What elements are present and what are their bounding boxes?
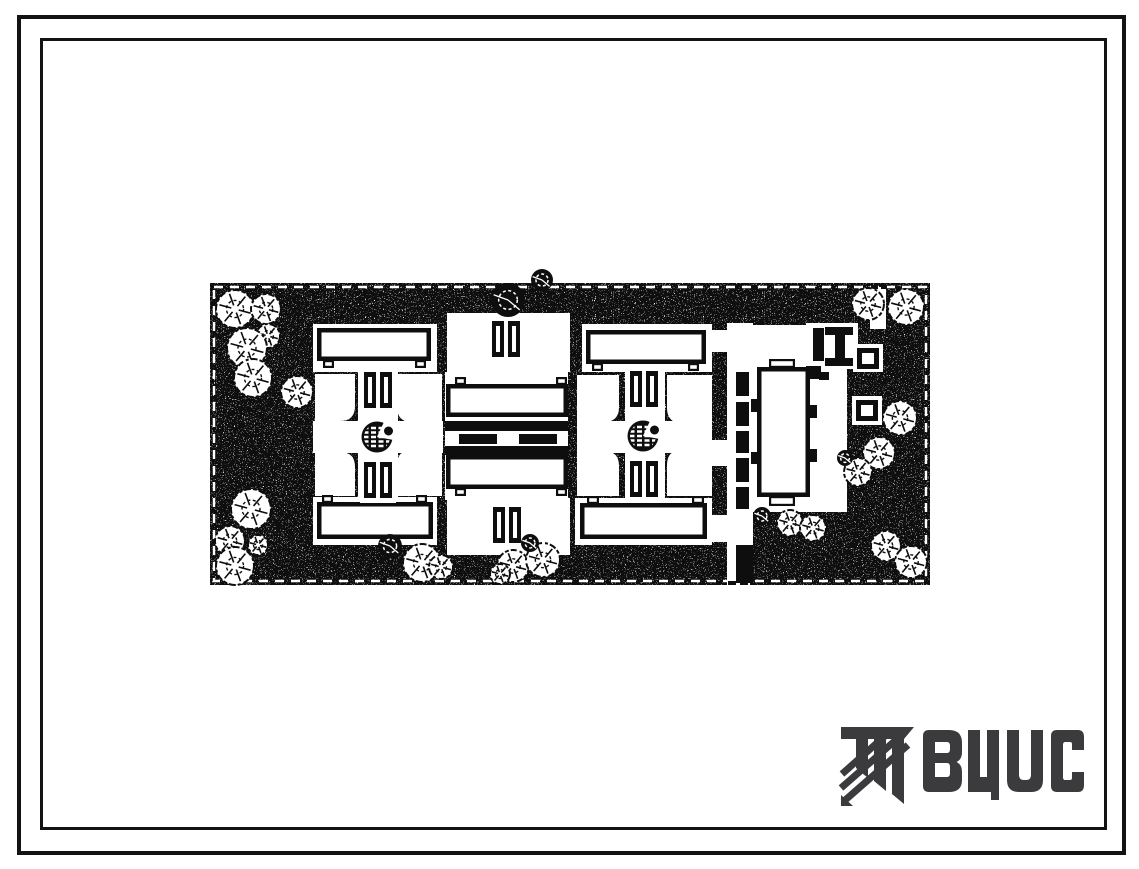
tree-symbol bbox=[216, 290, 254, 328]
tree-symbol bbox=[248, 535, 268, 555]
tower-pair bbox=[360, 367, 396, 413]
tree-symbol bbox=[490, 564, 510, 584]
logo-letter bbox=[923, 730, 962, 792]
tree-symbol bbox=[837, 450, 853, 466]
tree-symbol bbox=[281, 376, 313, 408]
tower-pair bbox=[489, 502, 525, 548]
tree-symbol bbox=[491, 283, 525, 317]
courtyard bbox=[577, 451, 619, 496]
tree-symbol bbox=[378, 534, 402, 558]
courtyard bbox=[315, 452, 355, 496]
tree-symbol bbox=[852, 288, 884, 320]
utility-square bbox=[857, 348, 879, 369]
logo-text: ВЦИС bbox=[0, 0, 1, 1]
tree-symbol bbox=[531, 269, 553, 291]
building-footprint bbox=[757, 359, 810, 506]
vcis-logo-letters bbox=[923, 730, 1084, 800]
tree-symbol bbox=[800, 515, 826, 541]
vcis-logo: ВЦИС bbox=[835, 720, 1090, 812]
tower-pair bbox=[488, 316, 524, 362]
tree-symbol bbox=[231, 489, 271, 529]
courtyard bbox=[667, 375, 712, 423]
logo-letter bbox=[1051, 730, 1084, 792]
site-plan-drawing bbox=[210, 283, 930, 585]
courtyard bbox=[667, 450, 712, 496]
courtyard bbox=[397, 450, 442, 496]
tree-symbol bbox=[429, 555, 453, 579]
tree-symbol bbox=[777, 510, 803, 536]
tree-symbol bbox=[251, 294, 281, 324]
tree-symbol bbox=[234, 359, 272, 397]
tower-pair bbox=[626, 366, 662, 412]
tree-symbol bbox=[753, 507, 771, 525]
tower-pair bbox=[626, 456, 662, 502]
courtyard bbox=[577, 375, 619, 422]
logo-letter bbox=[968, 730, 999, 800]
courtyard bbox=[397, 374, 442, 422]
logo-letter bbox=[1007, 730, 1043, 792]
tree-symbol bbox=[521, 534, 539, 552]
tree-symbol bbox=[883, 401, 917, 435]
tree-symbol bbox=[216, 547, 254, 585]
tree-symbol bbox=[888, 289, 924, 325]
courtyard bbox=[315, 374, 355, 421]
vcis-logo-mark: ВЦИС bbox=[841, 727, 914, 806]
tree-symbol bbox=[895, 546, 927, 578]
utility-square bbox=[856, 400, 878, 421]
tower-pair bbox=[360, 457, 396, 503]
